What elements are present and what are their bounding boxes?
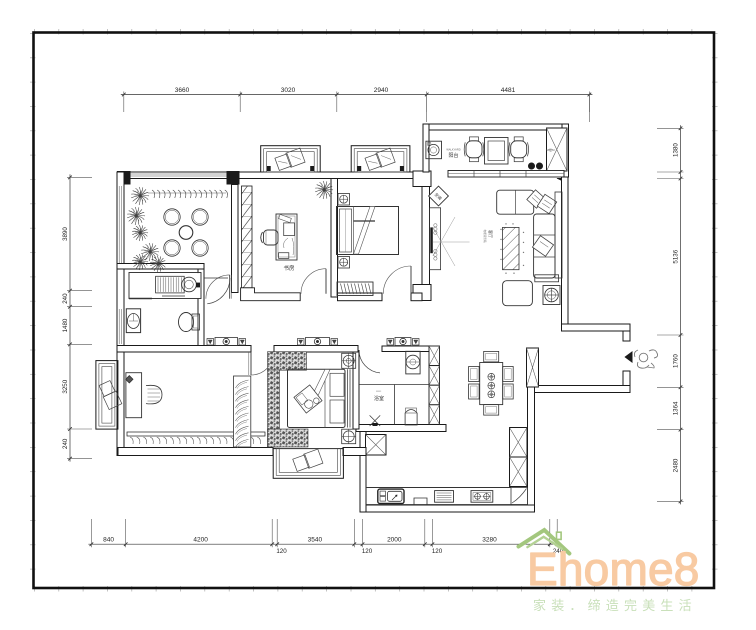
svg-text:3660: 3660 bbox=[175, 87, 190, 94]
svg-text:家装．缔造完美生活: 家装．缔造完美生活 bbox=[533, 598, 697, 613]
svg-text:书房: 书房 bbox=[283, 264, 295, 272]
svg-text:4481: 4481 bbox=[501, 87, 516, 94]
svg-text:WALKYARD: WALKYARD bbox=[446, 148, 460, 152]
svg-text:1480: 1480 bbox=[62, 318, 69, 332]
svg-text:3540: 3540 bbox=[308, 537, 323, 544]
svg-text:3890: 3890 bbox=[62, 227, 69, 241]
svg-text:2940: 2940 bbox=[374, 87, 389, 94]
svg-text:120: 120 bbox=[362, 548, 373, 555]
svg-text:4200: 4200 bbox=[193, 537, 208, 544]
svg-text:3020: 3020 bbox=[281, 87, 296, 94]
svg-text:120: 120 bbox=[432, 548, 443, 555]
svg-text:840: 840 bbox=[103, 537, 114, 544]
svg-text:240: 240 bbox=[62, 438, 69, 449]
svg-text:3280: 3280 bbox=[482, 537, 497, 544]
svg-text:▪▪▪▪ ▪▪▪: ▪▪▪▪ ▪▪▪ bbox=[136, 258, 146, 262]
svg-text:M楼M: M楼M bbox=[547, 147, 555, 152]
svg-text:阳台: 阳台 bbox=[448, 152, 458, 159]
svg-text:240: 240 bbox=[62, 293, 69, 304]
svg-text:Ehome8: Ehome8 bbox=[527, 543, 700, 595]
svg-text:120: 120 bbox=[276, 548, 287, 555]
svg-text:客厅: 客厅 bbox=[488, 230, 494, 238]
svg-text:5136: 5136 bbox=[673, 249, 680, 263]
svg-text:2480: 2480 bbox=[673, 458, 680, 472]
svg-text:▪▪▪▪▪: ▪▪▪▪▪ bbox=[376, 389, 381, 393]
svg-text:1760: 1760 bbox=[673, 354, 680, 368]
svg-text:1380: 1380 bbox=[673, 143, 680, 157]
svg-text:电视背景墙: 电视背景墙 bbox=[483, 230, 487, 243]
svg-text:浴室: 浴室 bbox=[374, 395, 384, 402]
svg-text:3250: 3250 bbox=[62, 379, 69, 393]
svg-text:2000: 2000 bbox=[387, 537, 402, 544]
svg-text:1364: 1364 bbox=[673, 401, 680, 415]
